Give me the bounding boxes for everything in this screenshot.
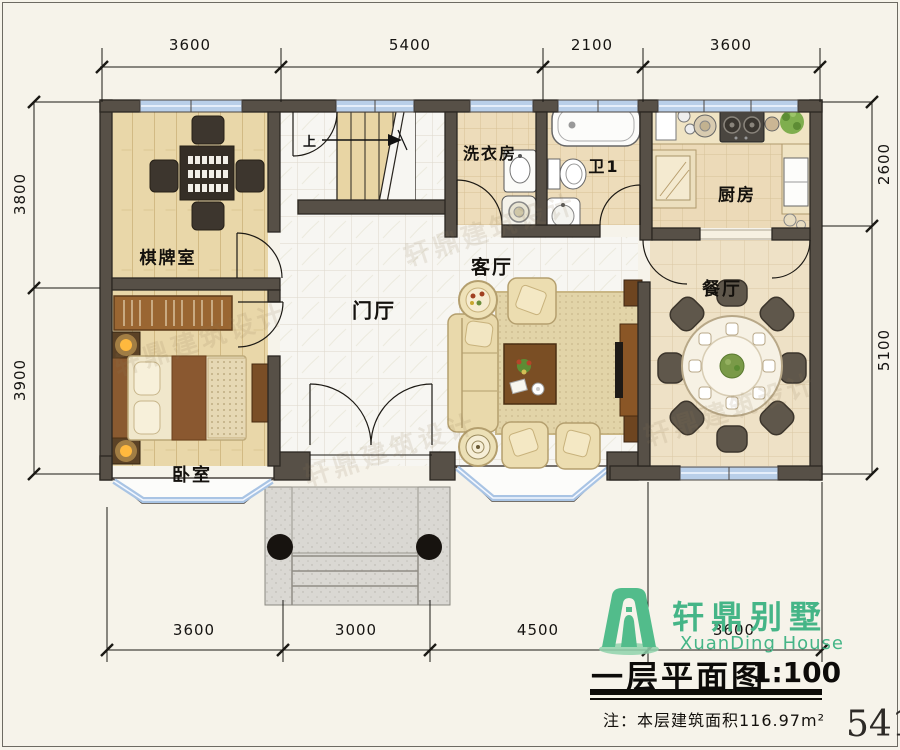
lamp <box>120 445 132 457</box>
bed-runner <box>172 356 206 440</box>
dim-top-2: 5400 <box>389 36 431 54</box>
page-number: 541 <box>846 704 900 745</box>
pillow <box>134 362 160 395</box>
toilet <box>548 159 560 189</box>
dining-table-set <box>658 280 806 452</box>
plan-area-note: 注：本层建筑面积116.97m² <box>603 707 825 731</box>
headboard <box>112 358 128 438</box>
dim-top-3: 2100 <box>571 36 613 54</box>
room-label-living: 客厅 <box>471 253 513 280</box>
cutting-board <box>656 108 676 140</box>
porch-column <box>267 534 293 560</box>
room-label-laundry: 洗衣房 <box>463 140 517 164</box>
room-label-bath: 卫1 <box>588 153 619 177</box>
pillow <box>134 401 160 434</box>
dim-bottom-2: 3000 <box>335 621 377 639</box>
room-label-foyer: 门厅 <box>352 295 396 324</box>
dim-bottom-3: 4500 <box>517 621 559 639</box>
porch-column <box>416 534 442 560</box>
room-label-dining: 餐厅 <box>702 275 742 301</box>
dim-left-1: 3800 <box>11 173 29 215</box>
lamp <box>120 339 132 351</box>
room-label-chess: 棋牌室 <box>140 244 197 269</box>
dining-chair <box>717 426 747 452</box>
coffee-table <box>504 344 556 404</box>
logo-house-icon <box>599 588 659 655</box>
dim-left-2: 3900 <box>11 359 29 401</box>
floorplan-sheet: 轩鼎建筑设计 轩鼎建筑设计 轩鼎建筑设计 轩鼎建筑设计 棋牌室 卧室 门厅 客厅… <box>0 0 900 750</box>
logo-text-en: XuanDing House <box>680 633 844 654</box>
tv <box>615 342 623 398</box>
dining-chair <box>780 353 806 383</box>
plan-scale: 1:100 <box>752 656 841 689</box>
cushion <box>464 320 493 347</box>
dim-top-4: 3600 <box>710 36 752 54</box>
stair-up-label: 上 <box>303 131 316 150</box>
centerpiece <box>720 354 744 378</box>
entry-porch <box>265 487 450 605</box>
room-label-kitchen: 厨房 <box>718 181 756 206</box>
living-bay-window <box>455 466 611 501</box>
logo-text-cn: 轩鼎别墅 <box>672 592 828 638</box>
title-underline-thin <box>590 698 822 700</box>
dim-right-2: 5100 <box>875 329 893 371</box>
room-label-bedroom: 卧室 <box>172 461 212 487</box>
title-underline <box>590 689 822 695</box>
dim-top-1: 3600 <box>169 36 211 54</box>
dim-bottom-1: 3600 <box>173 621 215 639</box>
dining-chair <box>658 353 684 383</box>
staircase <box>322 112 421 212</box>
dim-right-1: 2600 <box>875 143 893 185</box>
